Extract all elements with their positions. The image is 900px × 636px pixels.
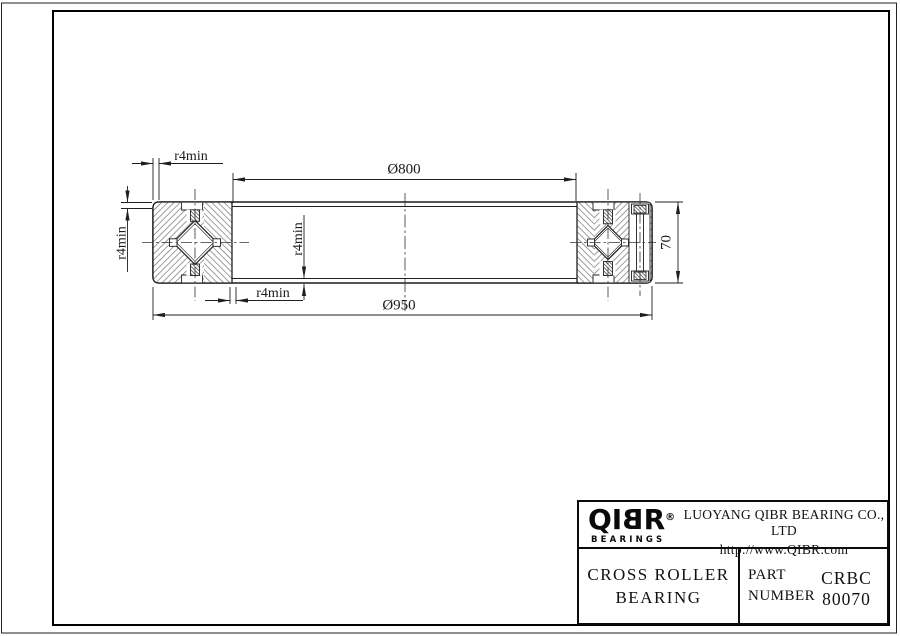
fillet-inner-label: r4min: [291, 222, 306, 255]
company-info: LUOYANG QIBR BEARING CO., LTD http://www…: [681, 502, 887, 547]
logo-tagline: BEARINGS: [591, 535, 681, 545]
company-name: LUOYANG QIBR BEARING CO., LTD: [681, 507, 887, 539]
section-width-label: 70: [659, 235, 675, 250]
mounting-hole: [629, 193, 650, 296]
fillet-top-label: r4min: [174, 149, 207, 164]
dimension-bore-diameter: Ø800: [233, 162, 576, 204]
registered-trademark-icon: ®: [665, 512, 675, 523]
logo-wordmark: QIBR®: [588, 506, 681, 534]
dimension-section-width: 70: [655, 202, 683, 283]
bearing-section-view: Ø800 Ø950 70 r4min: [115, 149, 684, 320]
product-name-cell: CROSS ROLLER BEARING: [579, 549, 740, 623]
drawing-sheet: Ø800 Ø950 70 r4min: [0, 0, 900, 636]
company-logo: QIBR® BEARINGS: [579, 502, 681, 547]
right-section-block: [570, 189, 656, 301]
dimension-fillet-left: r4min: [115, 186, 153, 272]
bore-diameter-label: Ø800: [387, 162, 420, 178]
dimension-fillet-bottom: r4min: [205, 286, 303, 304]
fillet-bottom-label: r4min: [256, 286, 289, 301]
dimension-outer-diameter: Ø950: [153, 286, 652, 320]
dimension-fillet-top: r4min: [132, 149, 223, 200]
part-number-value: CRBC 80070: [806, 562, 887, 610]
outer-diameter-label: Ø950: [382, 298, 415, 314]
part-number-cell: PART NUMBER CRBC 80070: [740, 549, 887, 623]
product-name-line1: CROSS ROLLER: [587, 563, 729, 586]
fillet-left-label: r4min: [115, 226, 130, 259]
product-name-line2: BEARING: [615, 586, 701, 609]
title-block-body-row: CROSS ROLLER BEARING PART NUMBER CRBC 80…: [579, 549, 887, 623]
part-number-label: PART NUMBER: [740, 565, 806, 607]
title-block-header-row: QIBR® BEARINGS LUOYANG QIBR BEARING CO.,…: [579, 502, 887, 549]
title-block: QIBR® BEARINGS LUOYANG QIBR BEARING CO.,…: [577, 500, 889, 625]
